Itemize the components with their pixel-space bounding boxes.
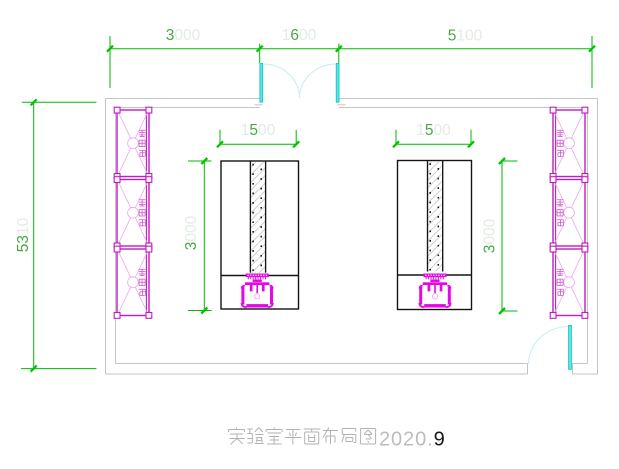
svg-text:5310: 5310 [15,217,32,252]
svg-text:3000: 3000 [183,215,200,250]
svg-text:1600: 1600 [282,27,317,44]
svg-text:5100: 5100 [448,28,483,45]
svg-text:3000: 3000 [482,218,499,253]
svg-text:3000: 3000 [166,27,201,44]
svg-text:1500: 1500 [416,122,451,139]
svg-text:2020.9: 2020.9 [379,429,446,451]
svg-text:1500: 1500 [241,122,276,139]
